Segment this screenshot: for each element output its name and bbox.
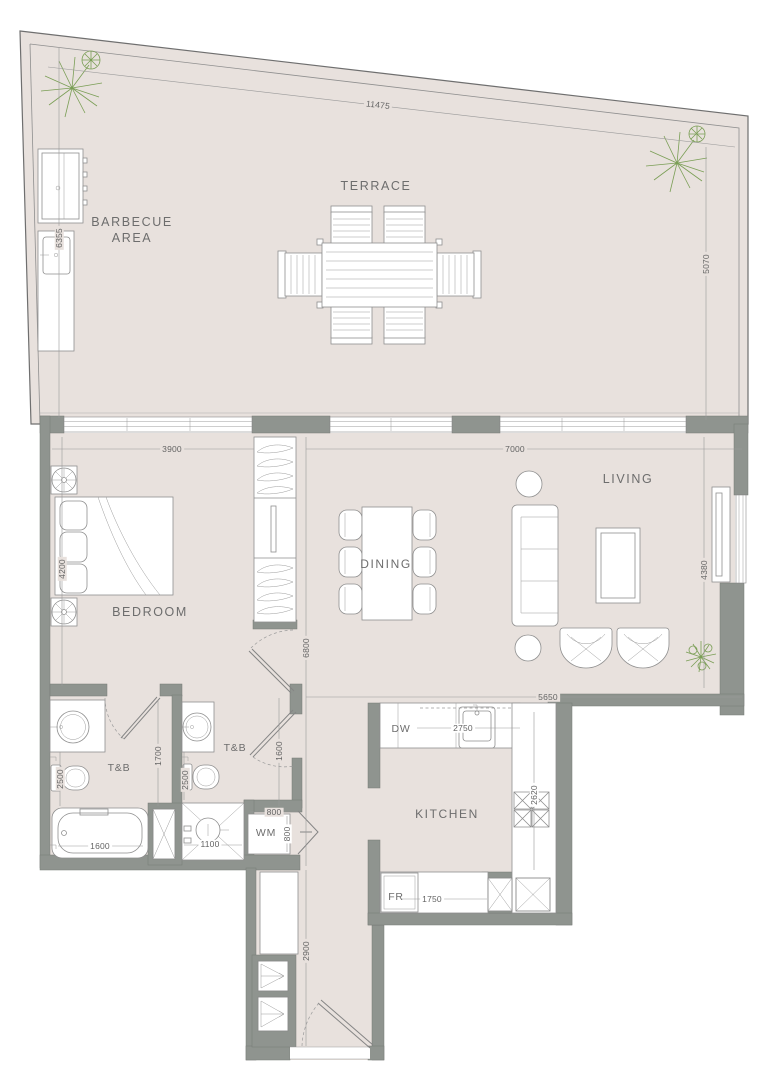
dim-bath1-depth: 2500 <box>56 767 65 791</box>
floor-plan: 11475 5070 6355 TERRACE BARBECUE AREA 39… <box>0 0 780 1083</box>
room-label-barbecue-2: AREA <box>112 232 152 245</box>
room-label-bath1: T&B <box>108 763 131 774</box>
dim-kitchen-depth: 2620 <box>530 783 539 807</box>
dim-bedroom-depth: 4200 <box>58 557 67 581</box>
dishwasher-label: DW <box>391 724 410 735</box>
dim-living-bottom: 5650 <box>536 693 560 702</box>
washer-label: WM <box>256 828 276 839</box>
dim-entry-length: 2900 <box>302 939 311 963</box>
fridge-label: FR <box>388 892 404 903</box>
dim-living-width: 7000 <box>503 445 527 454</box>
room-label-kitchen: KITCHEN <box>415 808 479 820</box>
dim-fridge-counter: 1750 <box>420 895 444 904</box>
room-label-bedroom: BEDROOM <box>112 606 188 619</box>
dim-bathtub: 1600 <box>88 842 112 851</box>
room-label-terrace: TERRACE <box>341 180 412 193</box>
room-label-living: LIVING <box>603 473 654 486</box>
room-label-dining: DINING <box>360 558 412 570</box>
dim-washer-width: 800 <box>265 808 284 817</box>
room-label-barbecue-1: BARBECUE <box>91 216 173 229</box>
dim-kitchen-counter: 2750 <box>451 724 475 733</box>
dim-terrace-left: 6355 <box>55 226 64 250</box>
dim-bath2-depth: 2500 <box>181 768 190 792</box>
dim-bath2-length: 1600 <box>275 739 284 763</box>
dim-terrace-width: 11475 <box>364 99 393 111</box>
dim-hall-length: 6800 <box>302 636 311 660</box>
dim-shower: 1100 <box>198 840 221 849</box>
room-label-bath2: T&B <box>224 743 247 754</box>
dim-bedroom-width: 3900 <box>160 445 184 454</box>
labels-layer: 11475 5070 6355 TERRACE BARBECUE AREA 39… <box>0 0 780 1083</box>
dim-washer-depth: 800 <box>283 825 292 844</box>
dim-terrace-right: 5070 <box>702 252 711 276</box>
dim-living-depth: 4380 <box>700 558 709 582</box>
dim-bath1-width: 1700 <box>154 744 163 768</box>
